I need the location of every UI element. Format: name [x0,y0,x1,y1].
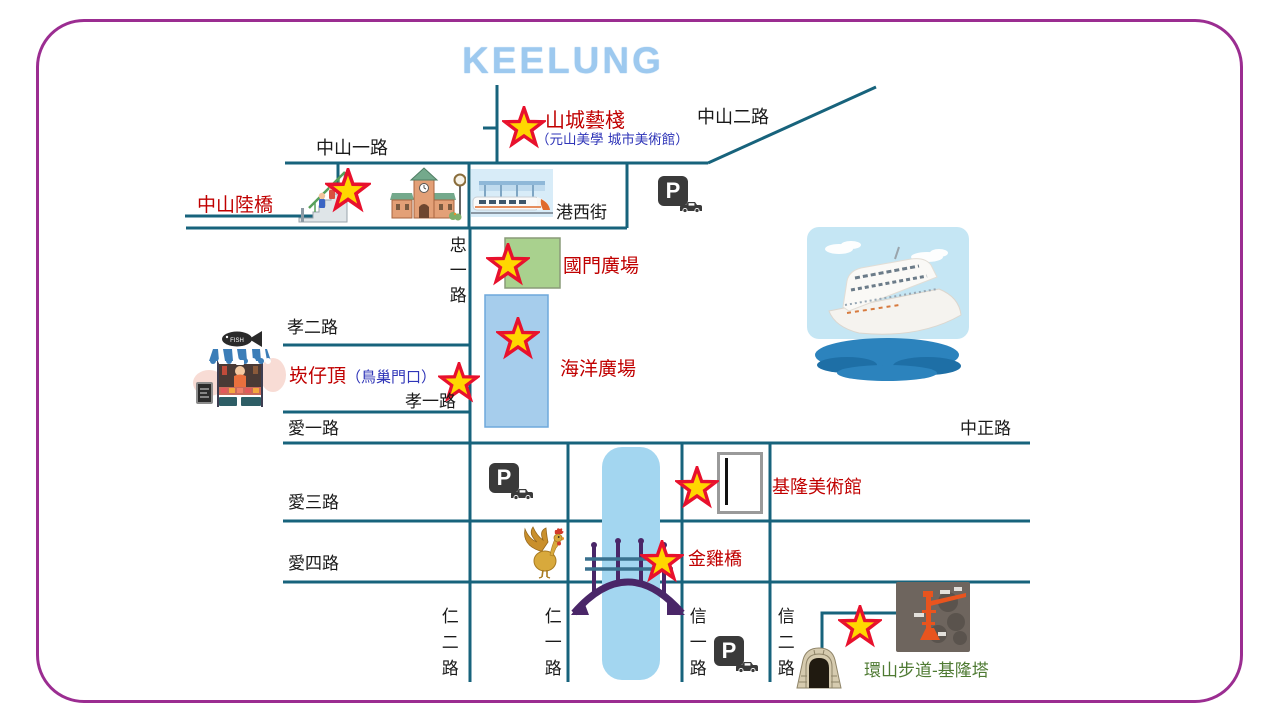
poi-label-shancheng: 山城藝棧 [545,109,625,131]
road-label-ai3: 愛三路 [288,494,339,513]
map-title: KEELUNG [462,40,664,82]
car-icon [509,486,535,500]
fish-market-icon: FISH [191,327,287,417]
road-label-ai1: 愛一路 [288,420,339,439]
train-station-icon [471,169,553,221]
parking-icon-xin1: P [714,636,746,668]
ocean-plaza-shape [485,295,548,427]
fish-sign-text: FISH [230,338,244,344]
poi-label-art-museum: 基隆美術館 [772,478,862,498]
star-icon-guomen [486,243,530,287]
parking-icon-station: P [658,176,690,208]
road-label-zhongzheng: 中正路 [960,420,1011,439]
road-label-xin1: 信一路 [686,607,705,685]
museum-building-icon [717,452,763,514]
poi-sublabel-kanzaiding: （鳥巢門口） [346,368,436,386]
road-label-zhongshan1: 中山一路 [316,139,388,159]
keelung-tower-icon [896,582,970,654]
road-label-ai4: 愛四路 [288,555,339,574]
star-icon-ocean-plaza [496,317,540,361]
road-label-xiao1: 孝一路 [405,393,456,412]
poi-label-trail-tower: 環山步道-基隆塔 [864,662,989,681]
road-label-xiao2: 孝二路 [287,319,338,338]
road-label-gangxi: 港西街 [556,204,607,223]
poi-label-kanzaiding: 崁仔頂（鳥巢門口） [289,366,436,387]
car-icon [734,659,760,673]
rooster-icon [518,525,564,579]
poi-label-guomen: 國門廣場 [563,256,639,277]
tunnel-icon [794,642,844,690]
poi-label-overpass: 中山陸橋 [197,195,273,216]
parking-icon-ai3: P [489,463,521,495]
car-icon [678,199,704,213]
poi-label-rooster-bridge: 金雞橋 [688,550,742,570]
road-label-xin2: 信二路 [774,607,793,685]
star-icon-rooster-bridge [640,540,684,584]
star-icon-trail-tower [838,605,882,649]
poi-label-kanzaiding-name: 崁仔頂 [289,365,346,387]
poi-label-ocean-plaza: 海洋廣場 [560,359,636,380]
road-label-ren1: 仁一路 [541,607,560,685]
star-icon-art-museum [675,466,719,510]
poi-sublabel-shancheng: （元山美學 城市美術館） [536,133,689,148]
road-label-ren2: 仁二路 [438,607,457,685]
road-label-zhongyi: 忠一路 [446,236,465,311]
road-label-zhongshan2: 中山二路 [697,108,769,128]
old-station-icon [382,164,466,228]
cruise-ship-icon [799,215,977,391]
keelung-map: KEELUNG [0,0,1280,720]
star-icon-overpass [325,168,371,214]
